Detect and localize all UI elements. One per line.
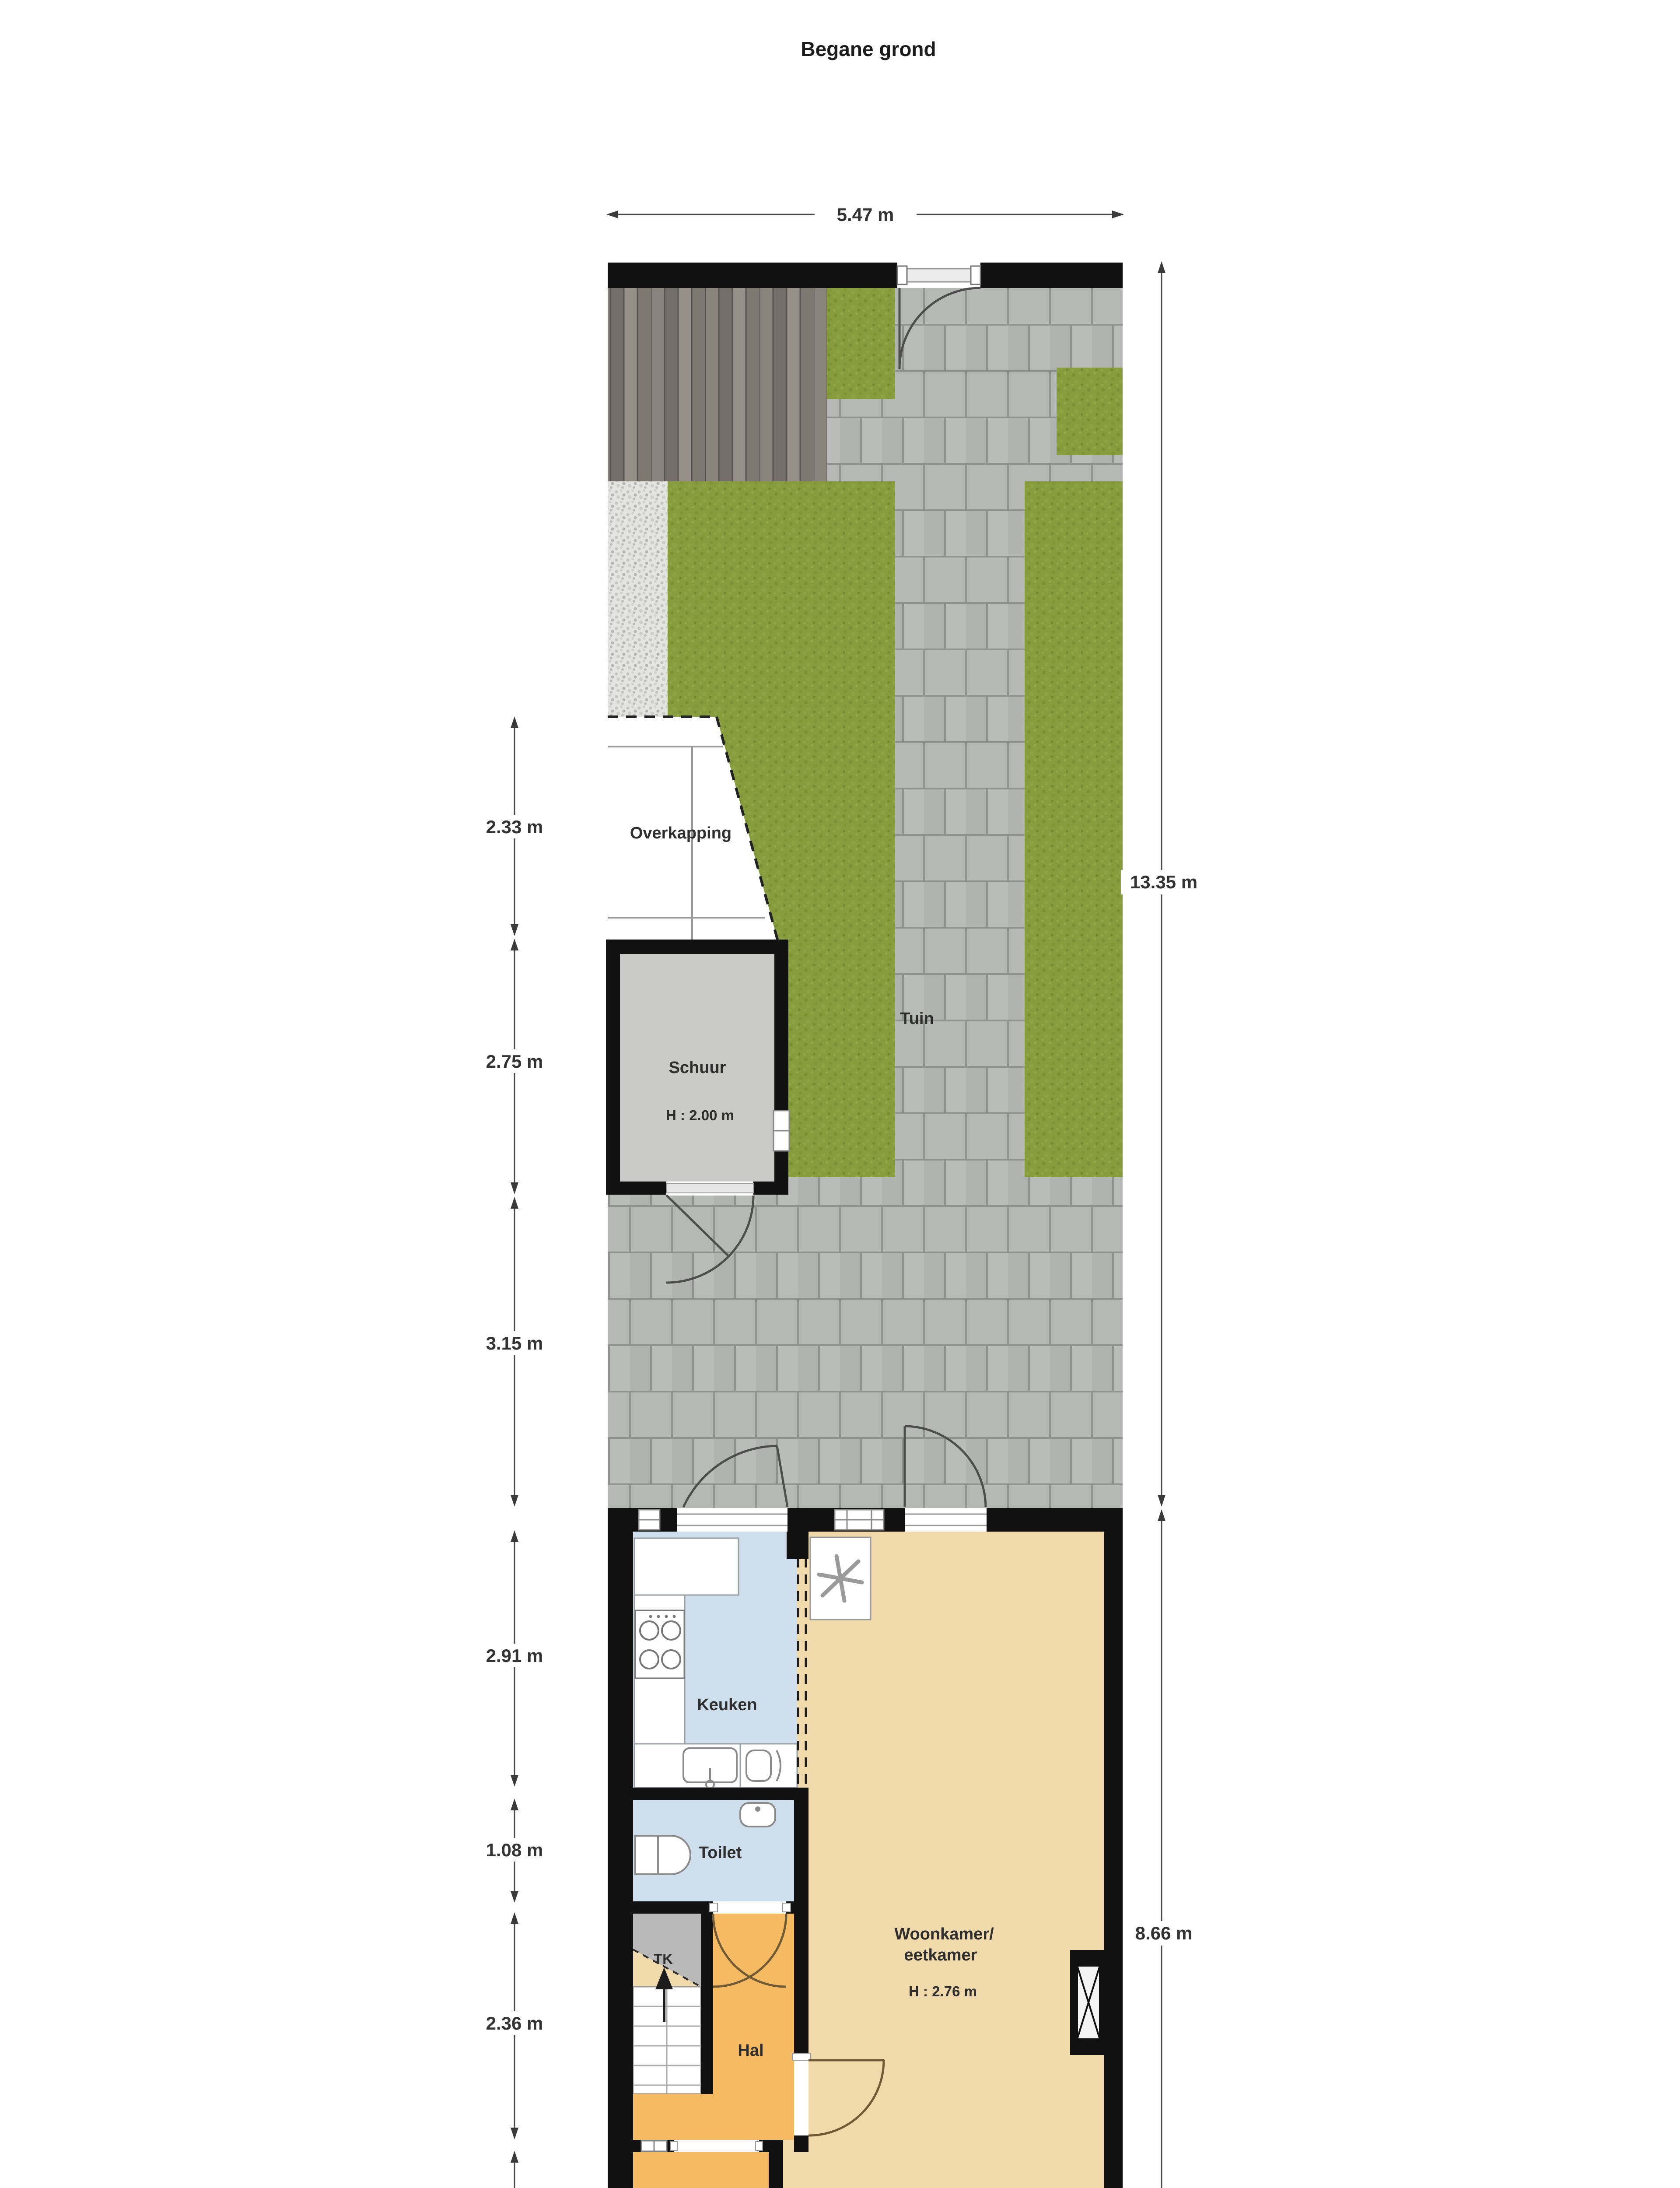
radiator-symbol xyxy=(1070,1950,1104,2055)
hal-label: Hal xyxy=(738,2041,763,2060)
schuur-height-label: H : 2.00 m xyxy=(666,1107,734,1123)
woonkamer-height-label: H : 2.76 m xyxy=(909,1983,977,1999)
woonkamer-label-2: eetkamer xyxy=(904,1946,977,1964)
wall-hal-woonkamer xyxy=(794,1788,808,2057)
house-left-wall xyxy=(608,1508,633,2188)
wall-entree-woonkamer xyxy=(769,2152,783,2188)
wood-decking xyxy=(608,288,827,481)
overkapping-label: Overkapping xyxy=(630,824,731,842)
dim-left-overkapping: 2.33 m xyxy=(486,817,543,837)
dim-top: 5.47 m xyxy=(608,204,1123,225)
dim-top-label: 5.47 m xyxy=(837,204,894,225)
gravel-strip xyxy=(608,481,668,718)
house: Keuken xyxy=(608,1508,1123,2188)
dim-right: 13.35 m 8.66 m 0.69 m xyxy=(1121,263,1207,2188)
back-garden: Overkapping Schuur H : 2.00 m Tuin xyxy=(606,288,1123,1508)
back-door-2 xyxy=(905,1508,987,1532)
floorplan-page: Begane grond Overkapping xyxy=(0,0,1680,2188)
entree-floor xyxy=(633,2152,769,2188)
dim-left-toilet: 1.08 m xyxy=(486,1840,543,1860)
rear-window xyxy=(835,1510,884,1530)
hal-floor xyxy=(713,1914,794,2140)
dim-right-house: 8.66 m xyxy=(1135,1923,1193,1943)
dim-left: 2.33 m 2.75 m 3.15 m 2.91 m 1.08 m 2.36 … xyxy=(477,718,552,2188)
toilet-bowl-icon xyxy=(635,1836,690,1874)
dim-left-schuur: 2.75 m xyxy=(486,1051,543,1072)
grass-right-column xyxy=(1025,481,1123,1177)
stairs-right-wall xyxy=(701,1914,713,2094)
sink-icon xyxy=(683,1748,737,1788)
dim-right-garden: 13.35 m xyxy=(1130,872,1197,892)
dim-left-achterplaats: 3.15 m xyxy=(486,1333,543,1353)
ventilation-fan-icon xyxy=(810,1537,871,1620)
dim-left-keuken: 2.91 m xyxy=(486,1645,543,1666)
floorplan-canvas: Begane grond Overkapping xyxy=(0,0,1680,2188)
page-title: Begane grond xyxy=(801,38,936,60)
toilet-label: Toilet xyxy=(699,1844,742,1862)
entree-inner-window xyxy=(641,2141,667,2151)
grass-patch-right-small xyxy=(1057,368,1123,455)
hal-floor-below-stairs xyxy=(633,2094,713,2140)
wall-kitchen-toilet xyxy=(608,1788,808,1800)
entree: Entree xyxy=(618,2152,769,2188)
toilet-room: Toilet xyxy=(633,1800,794,1901)
schuur-label: Schuur xyxy=(669,1059,726,1077)
toilet-basin-icon xyxy=(740,1803,775,1827)
woonkamer-label-1: Woonkamer/ xyxy=(894,1925,994,1943)
tuin-label: Tuin xyxy=(900,1010,934,1028)
schuur-window xyxy=(773,1111,789,1151)
kitchen-counter-top xyxy=(634,1538,738,1595)
back-door-1 xyxy=(677,1508,787,1532)
house-right-wall xyxy=(1104,1508,1123,2188)
house-top-facade xyxy=(608,1508,1123,1532)
keuken: Keuken xyxy=(633,1532,808,1788)
grass-patch-top xyxy=(827,288,895,399)
cooktop-icon xyxy=(635,1610,684,1678)
dim-left-hal: 2.36 m xyxy=(486,2013,543,2034)
keuken-label: Keuken xyxy=(697,1696,757,1714)
kitchen-window xyxy=(639,1510,660,1530)
tk-label: TK xyxy=(654,1951,673,1967)
wall-hal-woonkamer-stub xyxy=(794,2135,808,2152)
kitchen-divider-pier xyxy=(787,1532,808,1559)
